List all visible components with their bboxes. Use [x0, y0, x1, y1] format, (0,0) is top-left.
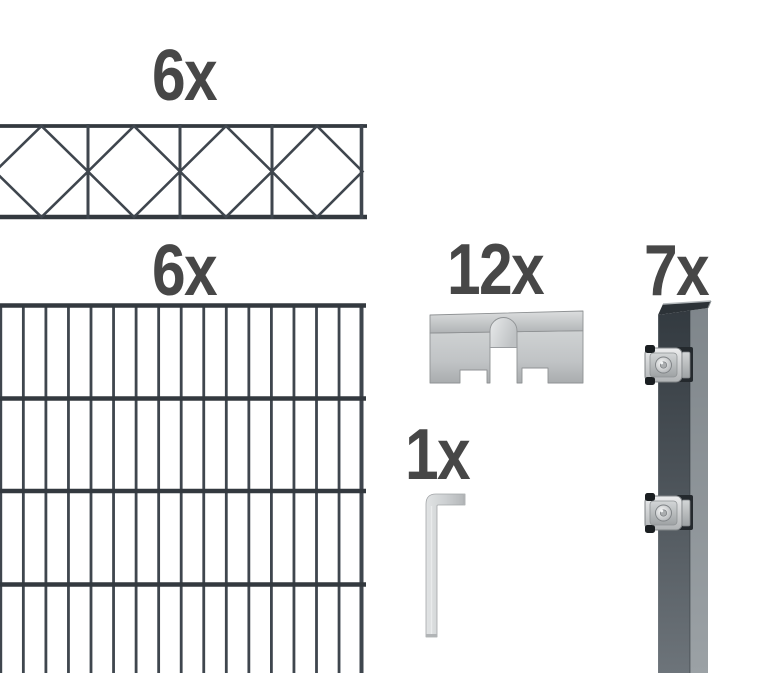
double-rod-mesh-panel-icon: [0, 302, 368, 673]
flat-bar-cover-bracket-icon: [428, 308, 586, 386]
mesh-vertical-wires: [1, 304, 339, 673]
decor-panel-count-label: 6x: [152, 40, 216, 112]
hex-allen-key-icon: [420, 490, 472, 642]
post-clamp-upper: [643, 344, 699, 388]
diamond-lattice-topper-panel-icon: [0, 118, 370, 224]
decor-vertical-dividers: [88, 124, 362, 219]
allen-key-count-label: 1x: [405, 419, 469, 491]
mesh-panel-count-label: 6x: [152, 235, 216, 307]
mesh-horizontal-rails: [0, 306, 366, 585]
allen-key-bottom-end: [426, 634, 437, 637]
bracket-dome-tab: [490, 318, 517, 348]
bracket-count-label: 12x: [447, 234, 543, 306]
fence-kit-contents: 6x 6x 12x 1x 7x: [0, 0, 769, 673]
allen-key-tip-end: [463, 494, 465, 505]
post-clamp-lower: [643, 492, 699, 536]
